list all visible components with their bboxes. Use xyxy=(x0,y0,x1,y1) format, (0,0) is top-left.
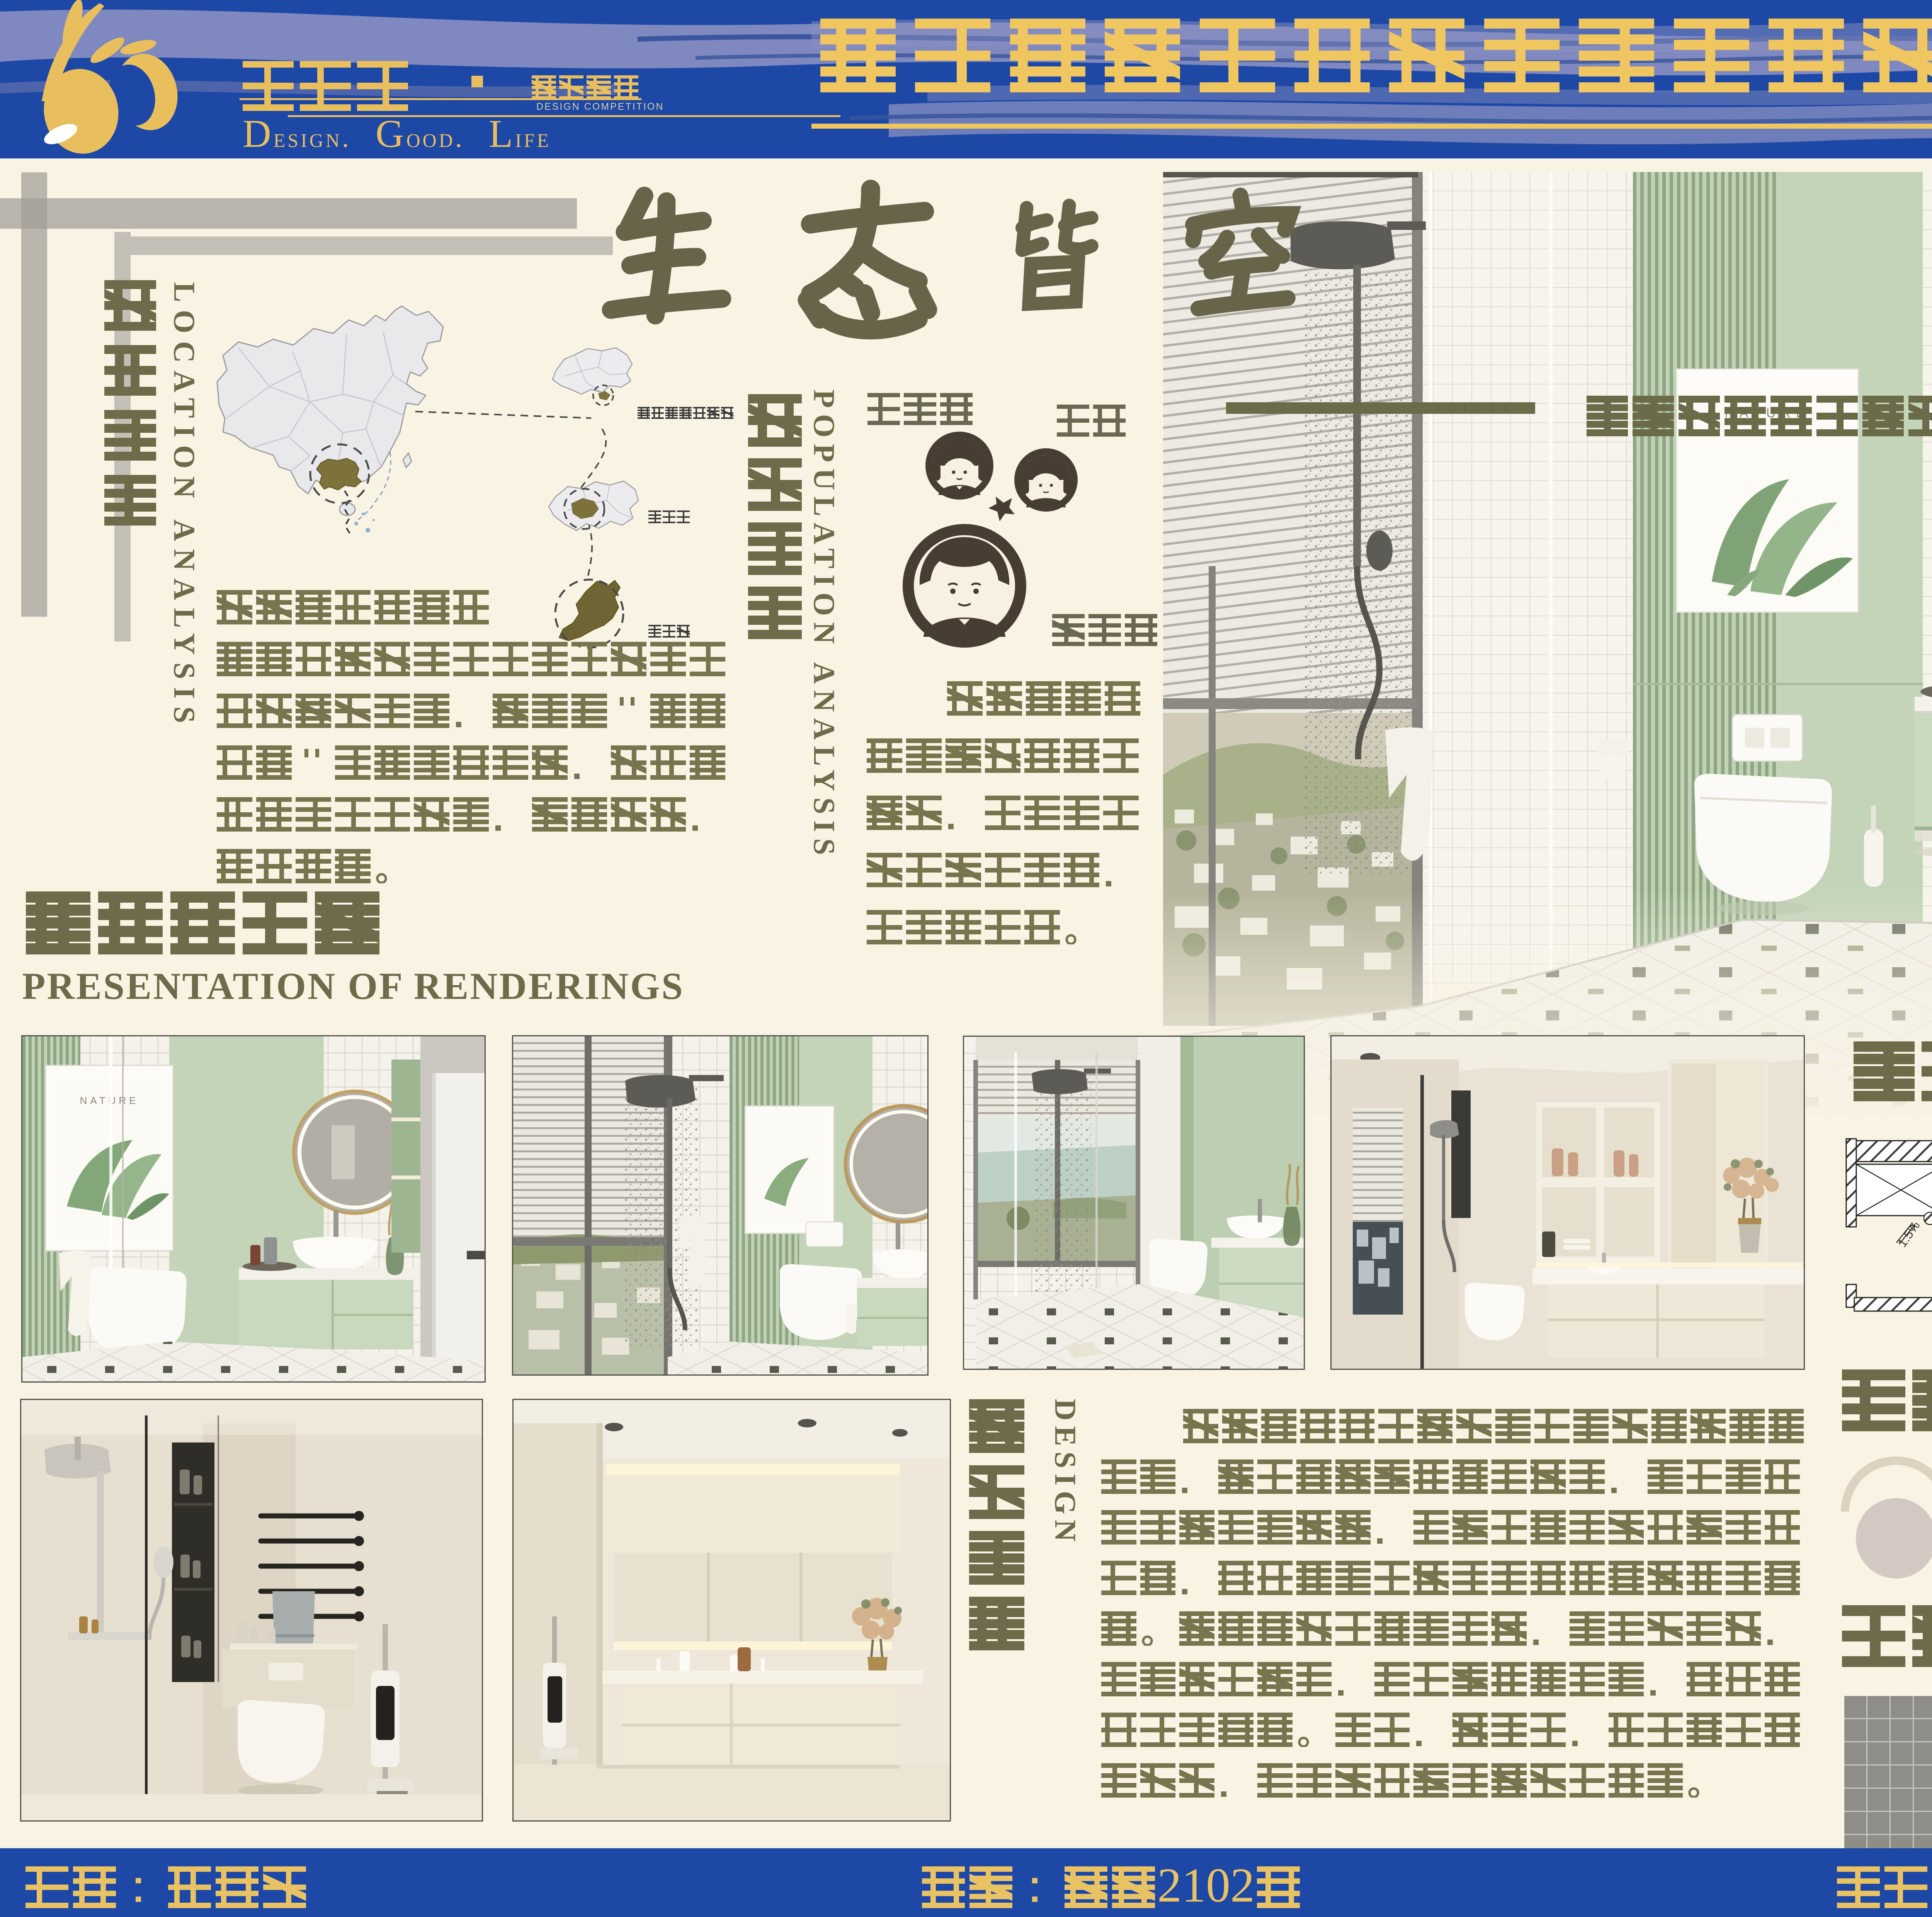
svg-text:1.5%: 1.5% xyxy=(1895,1219,1922,1250)
